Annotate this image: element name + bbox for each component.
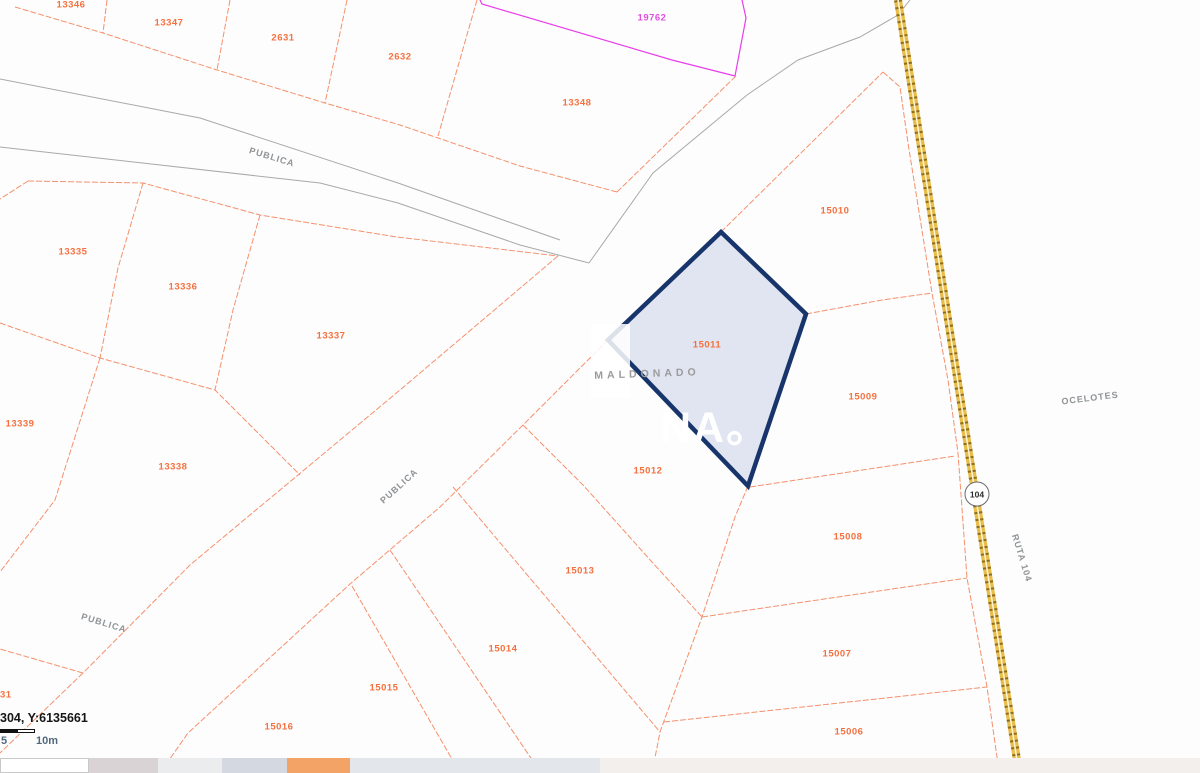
parcel-label-15008: 15008: [834, 532, 863, 543]
bottom-strip-segment-4[interactable]: [350, 758, 600, 773]
parcel-label-13337: 13337: [317, 331, 346, 342]
parcel-label-15012: 15012: [634, 466, 663, 477]
parcel-label-15007: 15007: [823, 649, 852, 660]
parcel-label-13347: 13347: [155, 18, 184, 29]
parcel-label-15013: 15013: [566, 566, 595, 577]
parcel-boundaries: [0, 0, 1002, 773]
bottom-strip-segment-3[interactable]: [222, 758, 287, 773]
road-edges-gray: [0, 0, 910, 263]
parcel-label-15015: 15015: [370, 683, 399, 694]
bottom-strip-segment-5[interactable]: [600, 758, 1200, 773]
scale-end-label: 10m: [36, 735, 58, 747]
route-104-shield: 104: [965, 482, 990, 507]
parcel-label-13348: 13348: [563, 98, 592, 109]
bottom-strip-white-box[interactable]: [0, 758, 89, 773]
scale-mid-label: 5: [1, 735, 7, 747]
scale-bar-filled-segment: [0, 729, 17, 733]
map-canvas[interactable]: NA。 MALDONADO 13346 13347 2631 2632 1976…: [0, 0, 1200, 773]
bottom-strip-segment-1[interactable]: [89, 758, 158, 773]
parcel-label-15014: 15014: [489, 644, 518, 655]
bottom-strip-segment-orange[interactable]: [287, 758, 350, 773]
parcel-label-13346: 13346: [57, 0, 86, 11]
parcel-19762-boundary: [480, 0, 746, 76]
parcel-label-13339: 13339: [6, 419, 35, 430]
parcel-label-13336: 13336: [169, 282, 198, 293]
parcel-label-15010: 15010: [821, 206, 850, 217]
watermark-logo-shape: [591, 324, 630, 398]
parcel-label-15011: 15011: [693, 340, 721, 351]
parcel-label-2632: 2632: [388, 52, 411, 63]
parcel-label-15016: 15016: [265, 722, 294, 733]
bottom-strip-segment-2[interactable]: [158, 758, 222, 773]
watermark-logo-text: NA。: [660, 407, 771, 450]
scale-bar-empty-segment: [17, 729, 35, 733]
parcel-label-2631: 2631: [271, 33, 294, 44]
parcel-label-13335: 13335: [59, 247, 88, 258]
cursor-coordinates-readout: 304, Y:6135661: [0, 711, 88, 725]
scale-bar: [0, 728, 37, 735]
parcel-label-15009: 15009: [849, 392, 878, 403]
parcel-label-15006: 15006: [835, 727, 864, 738]
parcel-label-19762: 19762: [638, 13, 667, 24]
parcel-label-31-clipped: 31: [0, 690, 12, 701]
parcel-label-13338: 13338: [159, 462, 188, 473]
route-104-line: [898, 0, 1019, 773]
